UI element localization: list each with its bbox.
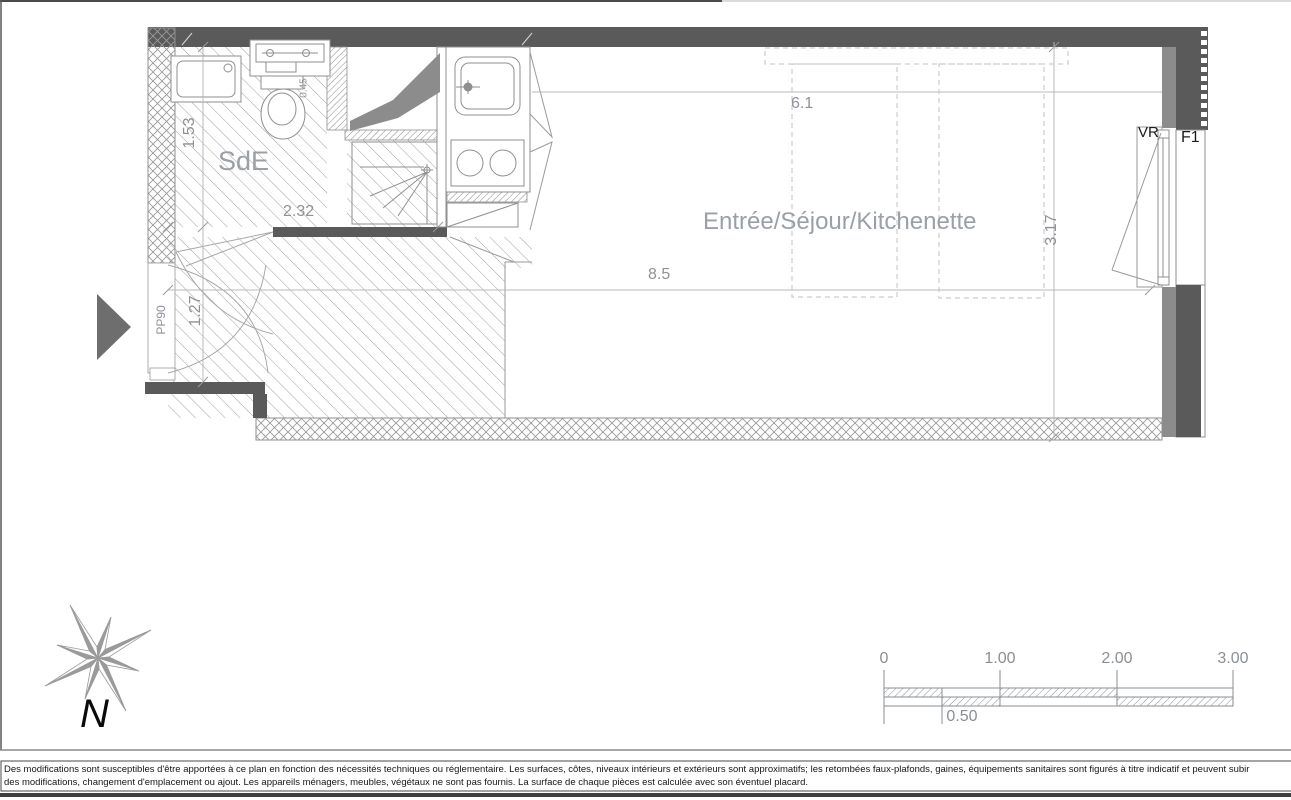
dim-entry-door: PP90 [154,305,168,334]
shutter-label-vr: VR [1138,124,1159,141]
scale-tick-2: 2.00 [1101,650,1132,668]
disclaimer-line-1: Des modifications sont susceptibles d'êt… [4,764,1291,775]
scale-bar-graphic [884,670,1233,724]
dim-living-length: 6.1 [791,95,813,113]
scale-tick-3: 3.00 [1217,650,1248,668]
scale-tick-0: 0 [880,650,889,668]
dim-total-length: 8.5 [648,266,670,284]
floorplan-sheet: SdE Entrée/Séjour/Kitchenette 1.53 2.32 … [0,0,1291,800]
window-label-f1: F1 [1181,129,1200,147]
dim-room-depth: 3.17 [1043,214,1061,245]
dim-bath-width: 1.53 [181,117,199,148]
room-label-main: Entrée/Séjour/Kitchenette [703,208,977,236]
north-label: N [80,692,109,737]
window-f1 [1112,127,1169,287]
scale-tick-1: 1.00 [984,650,1015,668]
kitchen-fixtures [446,47,552,262]
dim-entry-width: 1.27 [187,295,205,326]
scale-sub-tick: 0.50 [946,708,977,726]
entry-arrow [97,294,131,360]
dim-toilet-clearance: 0.45 [299,78,310,97]
dim-bath-length: 2.32 [283,203,314,221]
disclaimer-line-2: des modifications, changement d'emplacem… [4,777,1291,788]
room-label-sde: SdE [218,146,269,177]
